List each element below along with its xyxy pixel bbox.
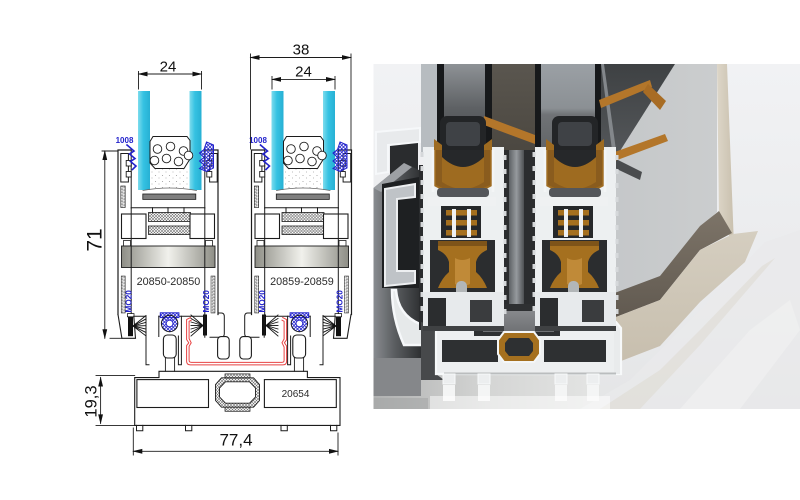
svg-text:38: 38 bbox=[293, 42, 310, 59]
svg-text:24: 24 bbox=[295, 64, 312, 81]
svg-text:24: 24 bbox=[160, 59, 177, 76]
svg-text:1008: 1008 bbox=[116, 136, 134, 145]
svg-text:MO20: MO20 bbox=[125, 290, 134, 313]
svg-text:20859-20859: 20859-20859 bbox=[270, 276, 334, 288]
svg-text:MO20: MO20 bbox=[202, 290, 211, 313]
svg-text:77,4: 77,4 bbox=[219, 431, 252, 450]
svg-text:20654: 20654 bbox=[282, 389, 310, 400]
svg-text:71: 71 bbox=[84, 228, 107, 251]
svg-text:20850-20850: 20850-20850 bbox=[137, 276, 201, 288]
svg-text:19,3: 19,3 bbox=[83, 385, 101, 417]
